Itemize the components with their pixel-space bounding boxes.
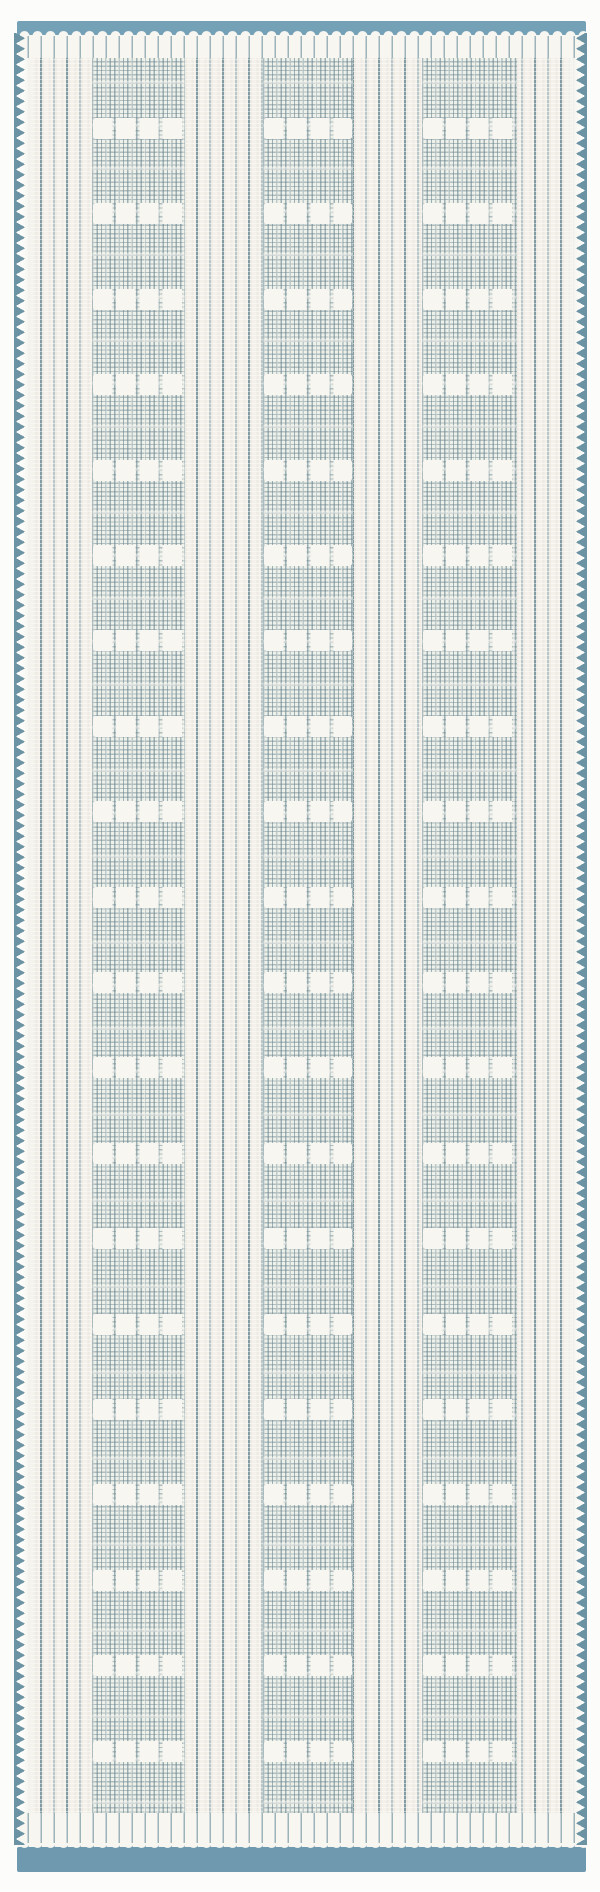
white-block-row	[93, 1741, 184, 1762]
white-block-row	[423, 1143, 516, 1164]
white-block-row	[264, 289, 352, 310]
white-block-row	[264, 203, 352, 224]
white-block-row	[423, 801, 516, 822]
white-block-row	[93, 1057, 184, 1078]
white-block-row	[423, 460, 516, 481]
white-block-row	[93, 716, 184, 737]
rug	[16, 21, 589, 1872]
white-block-row	[423, 1228, 516, 1249]
white-block-row	[423, 289, 516, 310]
grid-panel-right	[422, 37, 517, 1847]
white-block-row	[264, 1399, 352, 1420]
white-block-row	[93, 1228, 184, 1249]
white-block-row	[264, 887, 352, 908]
white-block-row	[93, 545, 184, 566]
white-block-row	[93, 374, 184, 395]
white-block-row	[423, 374, 516, 395]
white-block-row	[93, 630, 184, 651]
white-block-row	[264, 118, 352, 139]
white-block-row	[423, 203, 516, 224]
grid-panel-left	[92, 37, 185, 1847]
white-block-row	[93, 1655, 184, 1676]
white-block-row	[93, 118, 184, 139]
white-block-row	[93, 1570, 184, 1591]
white-block-row	[423, 1057, 516, 1078]
white-block-row	[264, 801, 352, 822]
white-block-row	[423, 118, 516, 139]
white-block-row	[423, 1484, 516, 1505]
white-block-row	[423, 716, 516, 737]
white-block-row	[423, 545, 516, 566]
white-block-row	[264, 1741, 352, 1762]
white-block-row	[93, 801, 184, 822]
top-warp-rib-strip	[18, 35, 586, 58]
top-band-scallops	[18, 27, 586, 36]
rug-product-photo	[0, 0, 600, 1892]
white-block-row	[264, 1484, 352, 1505]
white-block-row	[93, 203, 184, 224]
white-block-row	[264, 1143, 352, 1164]
white-block-row	[93, 1484, 184, 1505]
white-block-row	[93, 460, 184, 481]
white-block-row	[264, 1314, 352, 1335]
white-block-row	[264, 1057, 352, 1078]
white-block-row	[423, 630, 516, 651]
white-block-row	[264, 1228, 352, 1249]
white-block-row	[423, 887, 516, 908]
white-block-row	[93, 887, 184, 908]
white-block-row	[423, 1655, 516, 1676]
white-block-row	[264, 374, 352, 395]
white-block-row	[264, 716, 352, 737]
white-block-row	[93, 1314, 184, 1335]
white-block-row	[264, 972, 352, 993]
white-block-row	[264, 545, 352, 566]
white-block-row	[93, 1399, 184, 1420]
white-block-row	[264, 1570, 352, 1591]
white-block-row	[264, 460, 352, 481]
bottom-band-scallops	[18, 1843, 586, 1852]
white-block-row	[264, 1655, 352, 1676]
white-block-row	[423, 1399, 516, 1420]
white-block-row	[93, 972, 184, 993]
left-selvedge-zigzag	[14, 33, 25, 1845]
white-block-row	[423, 1570, 516, 1591]
white-block-row	[93, 289, 184, 310]
white-block-row	[423, 1741, 516, 1762]
grid-panel-center	[263, 37, 353, 1847]
white-block-row	[423, 972, 516, 993]
white-block-row	[93, 1143, 184, 1164]
right-selvedge-zigzag	[576, 33, 587, 1845]
white-block-row	[423, 1314, 516, 1335]
white-block-row	[264, 630, 352, 651]
bottom-warp-rib-strip	[18, 1813, 586, 1847]
